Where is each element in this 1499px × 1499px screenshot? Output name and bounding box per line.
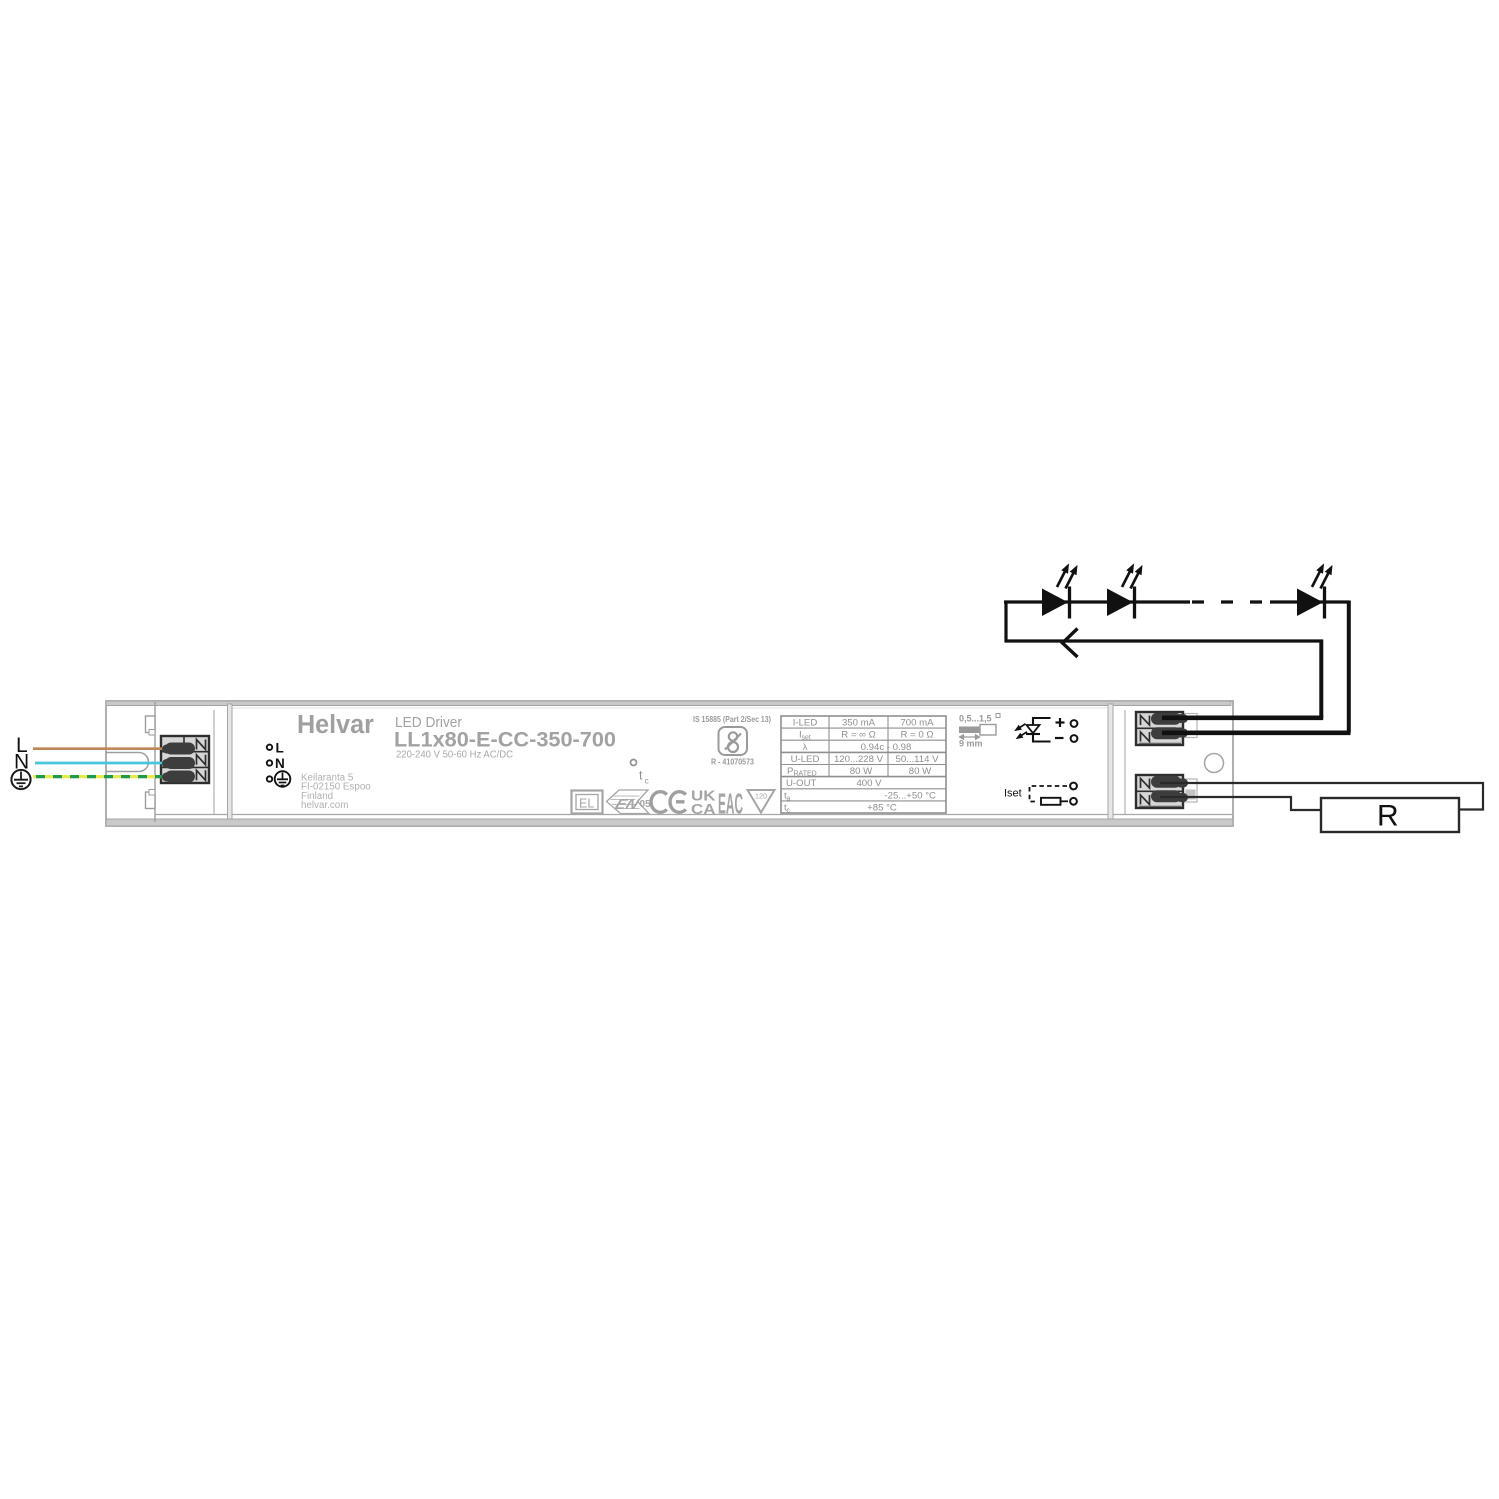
svg-text:U-OUT: U-OUT [786,778,817,789]
svg-text:700 mA: 700 mA [900,718,934,729]
svg-text:EL: EL [579,797,594,811]
svg-text:80 W: 80 W [909,766,932,777]
svg-text:220-240 V 50-60 Hz AC/DC: 220-240 V 50-60 Hz AC/DC [396,750,513,761]
svg-text:LL1x80-E-CC-350-700: LL1x80-E-CC-350-700 [394,729,616,752]
svg-text:50...114 V: 50...114 V [895,754,939,765]
svg-text:set: set [802,735,811,742]
svg-text:400 V: 400 V [856,778,882,789]
svg-text:I-LED: I-LED [793,718,818,729]
svg-text:R: R [1377,800,1399,833]
svg-text:N: N [275,756,285,771]
svg-text:t: t [639,769,643,783]
svg-text:EAC: EAC [718,789,743,821]
svg-text:RATED: RATED [794,771,817,778]
svg-text:R - 41070573: R - 41070573 [711,758,754,767]
svg-text:L: L [276,741,284,756]
svg-text:80 W: 80 W [850,766,873,777]
svg-text:Iset: Iset [1004,788,1022,800]
svg-text:a: a [787,795,791,802]
svg-text:CA: CA [691,802,716,818]
svg-text:0.94c - 0.98: 0.94c - 0.98 [861,742,912,753]
svg-text:Helvar: Helvar [297,711,374,739]
svg-text:-25...+50 °C: -25...+50 °C [884,790,936,801]
svg-text:120: 120 [755,792,767,801]
svg-text:U-LED: U-LED [791,754,820,765]
svg-text:c: c [787,808,791,815]
svg-text:120...228 V: 120...228 V [834,754,884,765]
svg-text:+85 °C: +85 °C [867,803,897,814]
svg-text:λ: λ [803,742,808,753]
svg-text:IS 15885 (Part 2/Sec 13): IS 15885 (Part 2/Sec 13) [693,715,771,724]
svg-text:9 mm: 9 mm [959,739,983,749]
svg-text:05: 05 [640,799,652,810]
svg-text:helvar.com: helvar.com [301,800,348,811]
svg-text:R = 0 Ω: R = 0 Ω [900,730,933,741]
svg-text:P: P [787,766,793,777]
svg-text:350 mA: 350 mA [842,718,876,729]
svg-text:R = ∞ Ω: R = ∞ Ω [841,730,876,741]
svg-text:0,5...1,5: 0,5...1,5 [959,714,992,724]
